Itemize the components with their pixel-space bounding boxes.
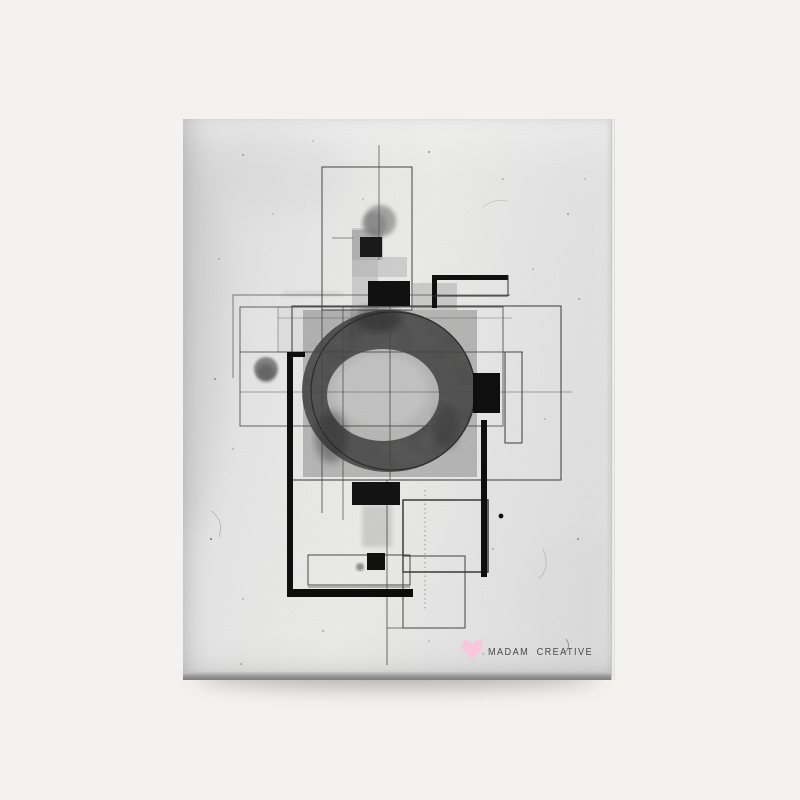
- grain-texture: [183, 119, 611, 672]
- brand-label: MADAM CREATIVE: [488, 646, 593, 658]
- canvas-right-edge: [611, 119, 615, 680]
- abstract-artwork: MADAM CREATIVE: [183, 119, 611, 672]
- canvas-bottom-edge: [183, 672, 611, 680]
- canvas-surface: MADAM CREATIVE: [183, 119, 611, 672]
- canvas-print: MADAM CREATIVE: [183, 119, 611, 672]
- mockup-scene: MADAM CREATIVE: [0, 0, 800, 800]
